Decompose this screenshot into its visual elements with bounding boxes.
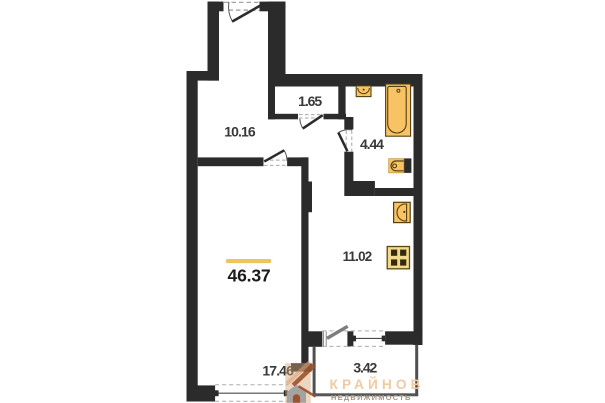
- svg-text:НЕДВИЖИМОСТЬ: НЕДВИЖИМОСТЬ: [331, 393, 412, 402]
- svg-text:46.37: 46.37: [227, 266, 270, 286]
- svg-text:1.65: 1.65: [298, 93, 322, 109]
- svg-text:3.42: 3.42: [353, 360, 377, 376]
- svg-text:4.44: 4.44: [360, 136, 384, 152]
- svg-text:КРАЙНОВ: КРАЙНОВ: [330, 377, 425, 392]
- svg-text:10.16: 10.16: [224, 124, 256, 140]
- svg-text:11.02: 11.02: [343, 249, 372, 264]
